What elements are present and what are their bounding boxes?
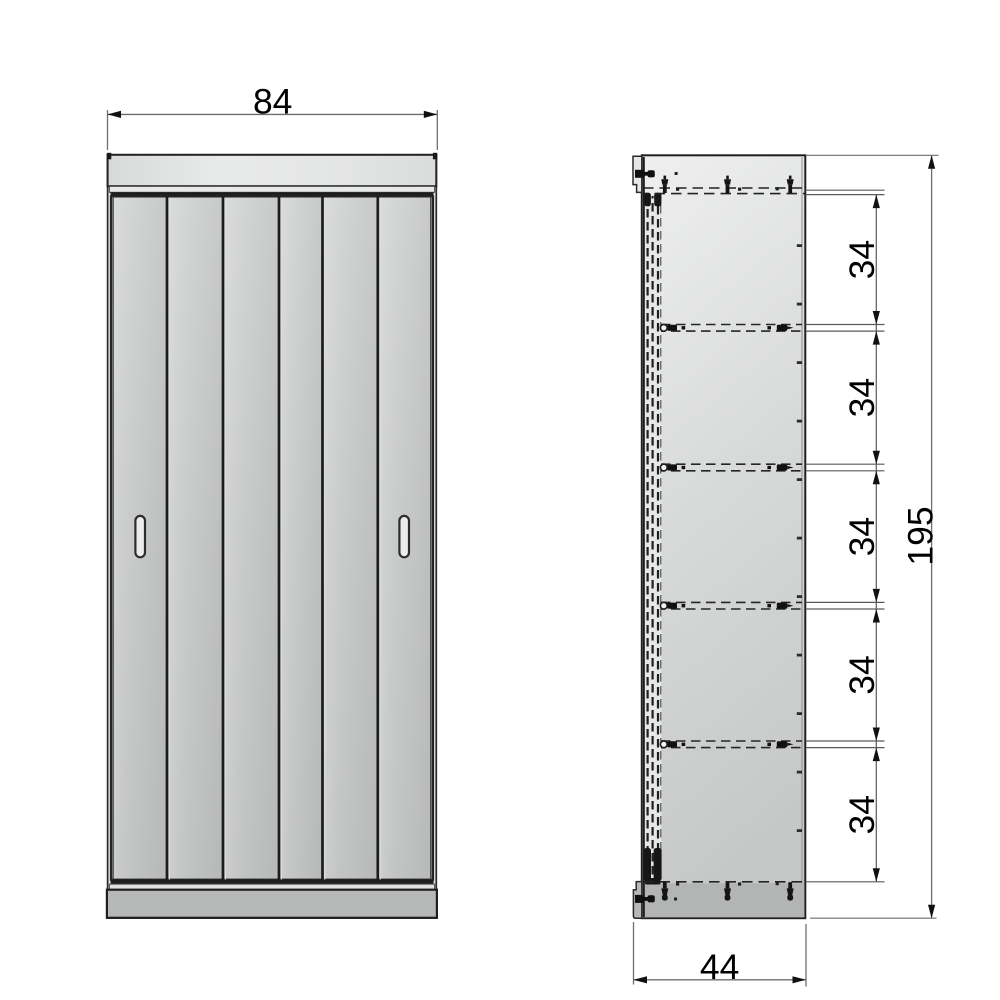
svg-text:34: 34 [842,517,882,557]
svg-text:84: 84 [253,82,293,122]
svg-text:195: 195 [900,506,940,565]
svg-text:34: 34 [842,655,882,695]
svg-text:34: 34 [842,795,882,835]
svg-text:44: 44 [700,947,740,987]
svg-text:34: 34 [842,240,882,280]
svg-text:34: 34 [842,378,882,418]
